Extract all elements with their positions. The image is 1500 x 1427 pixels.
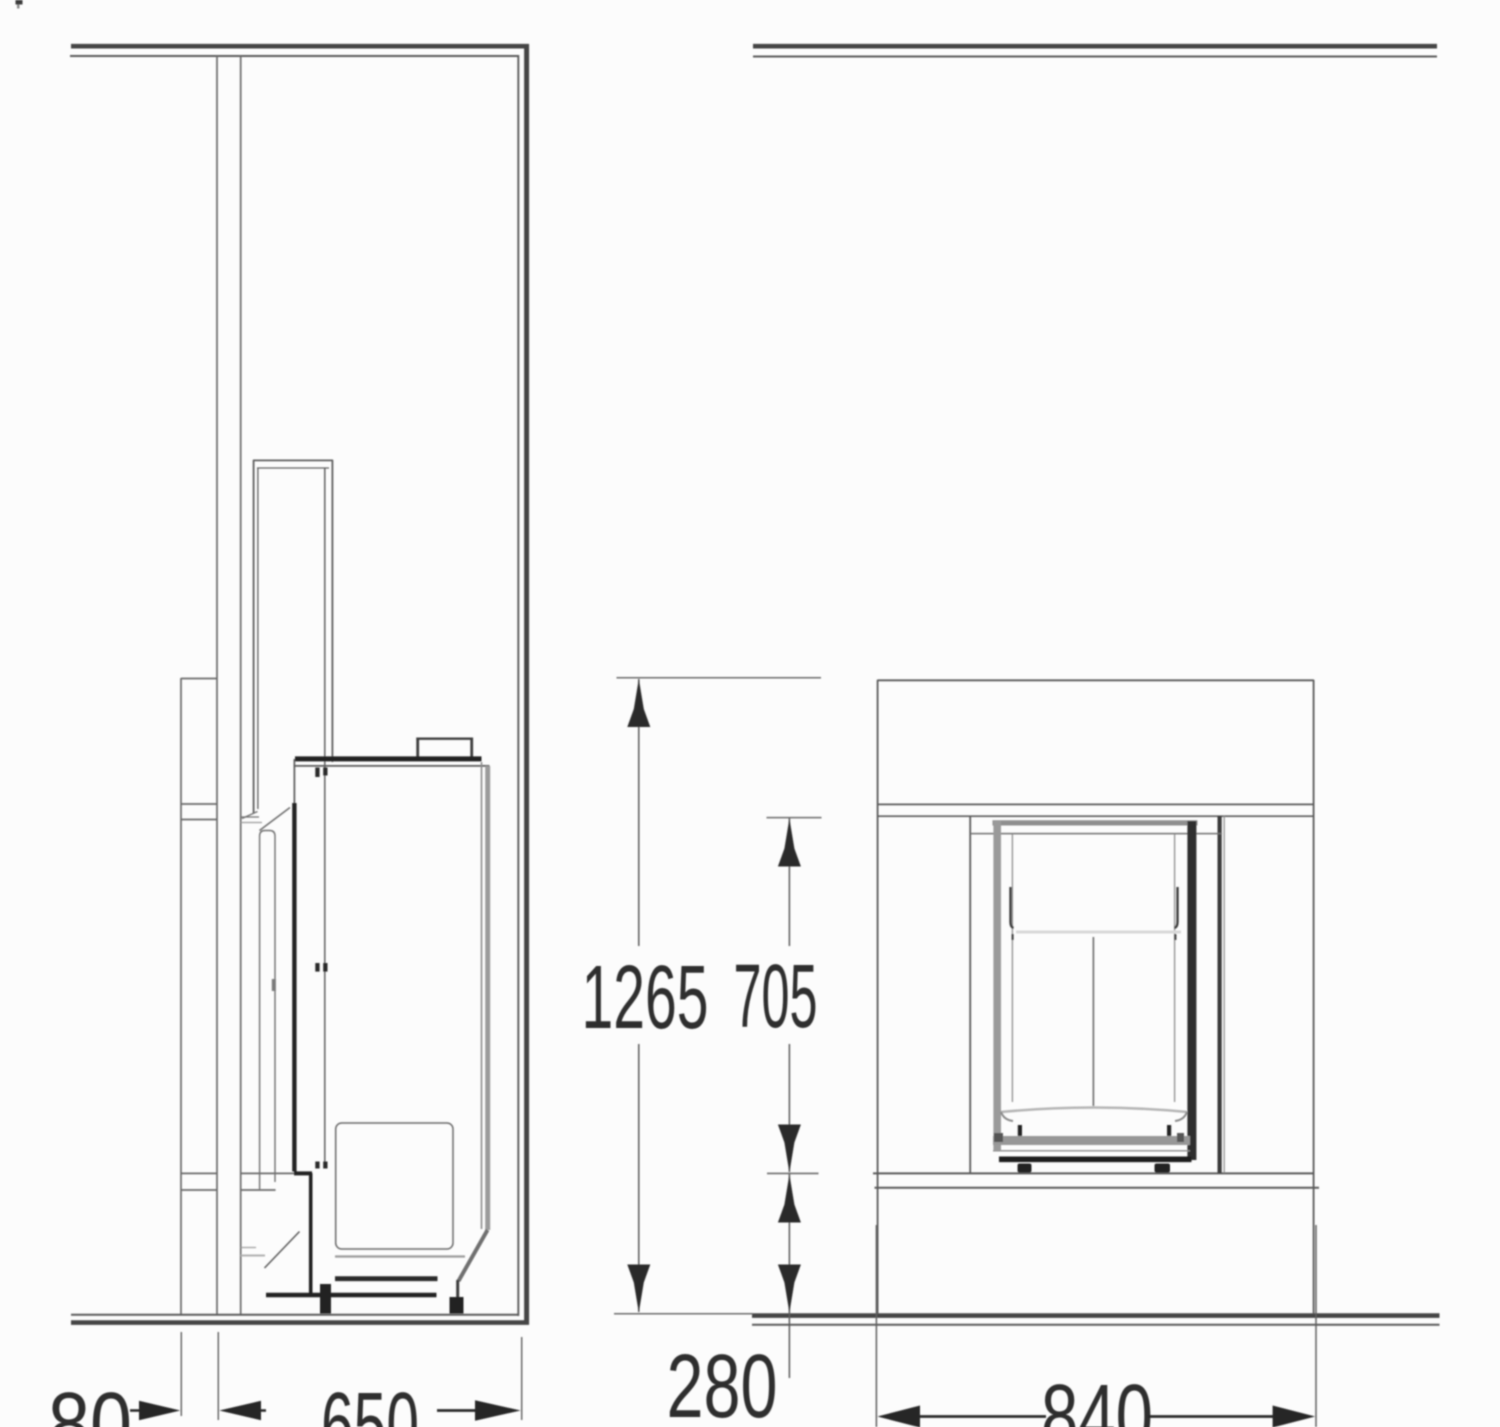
svg-text:1265: 1265	[582, 948, 709, 1048]
svg-text:650: 650	[321, 1375, 419, 1427]
svg-text:280: 280	[667, 1337, 778, 1427]
svg-text:80: 80	[48, 1375, 132, 1427]
svg-text:705: 705	[734, 947, 818, 1047]
svg-text:840: 840	[1041, 1367, 1153, 1427]
